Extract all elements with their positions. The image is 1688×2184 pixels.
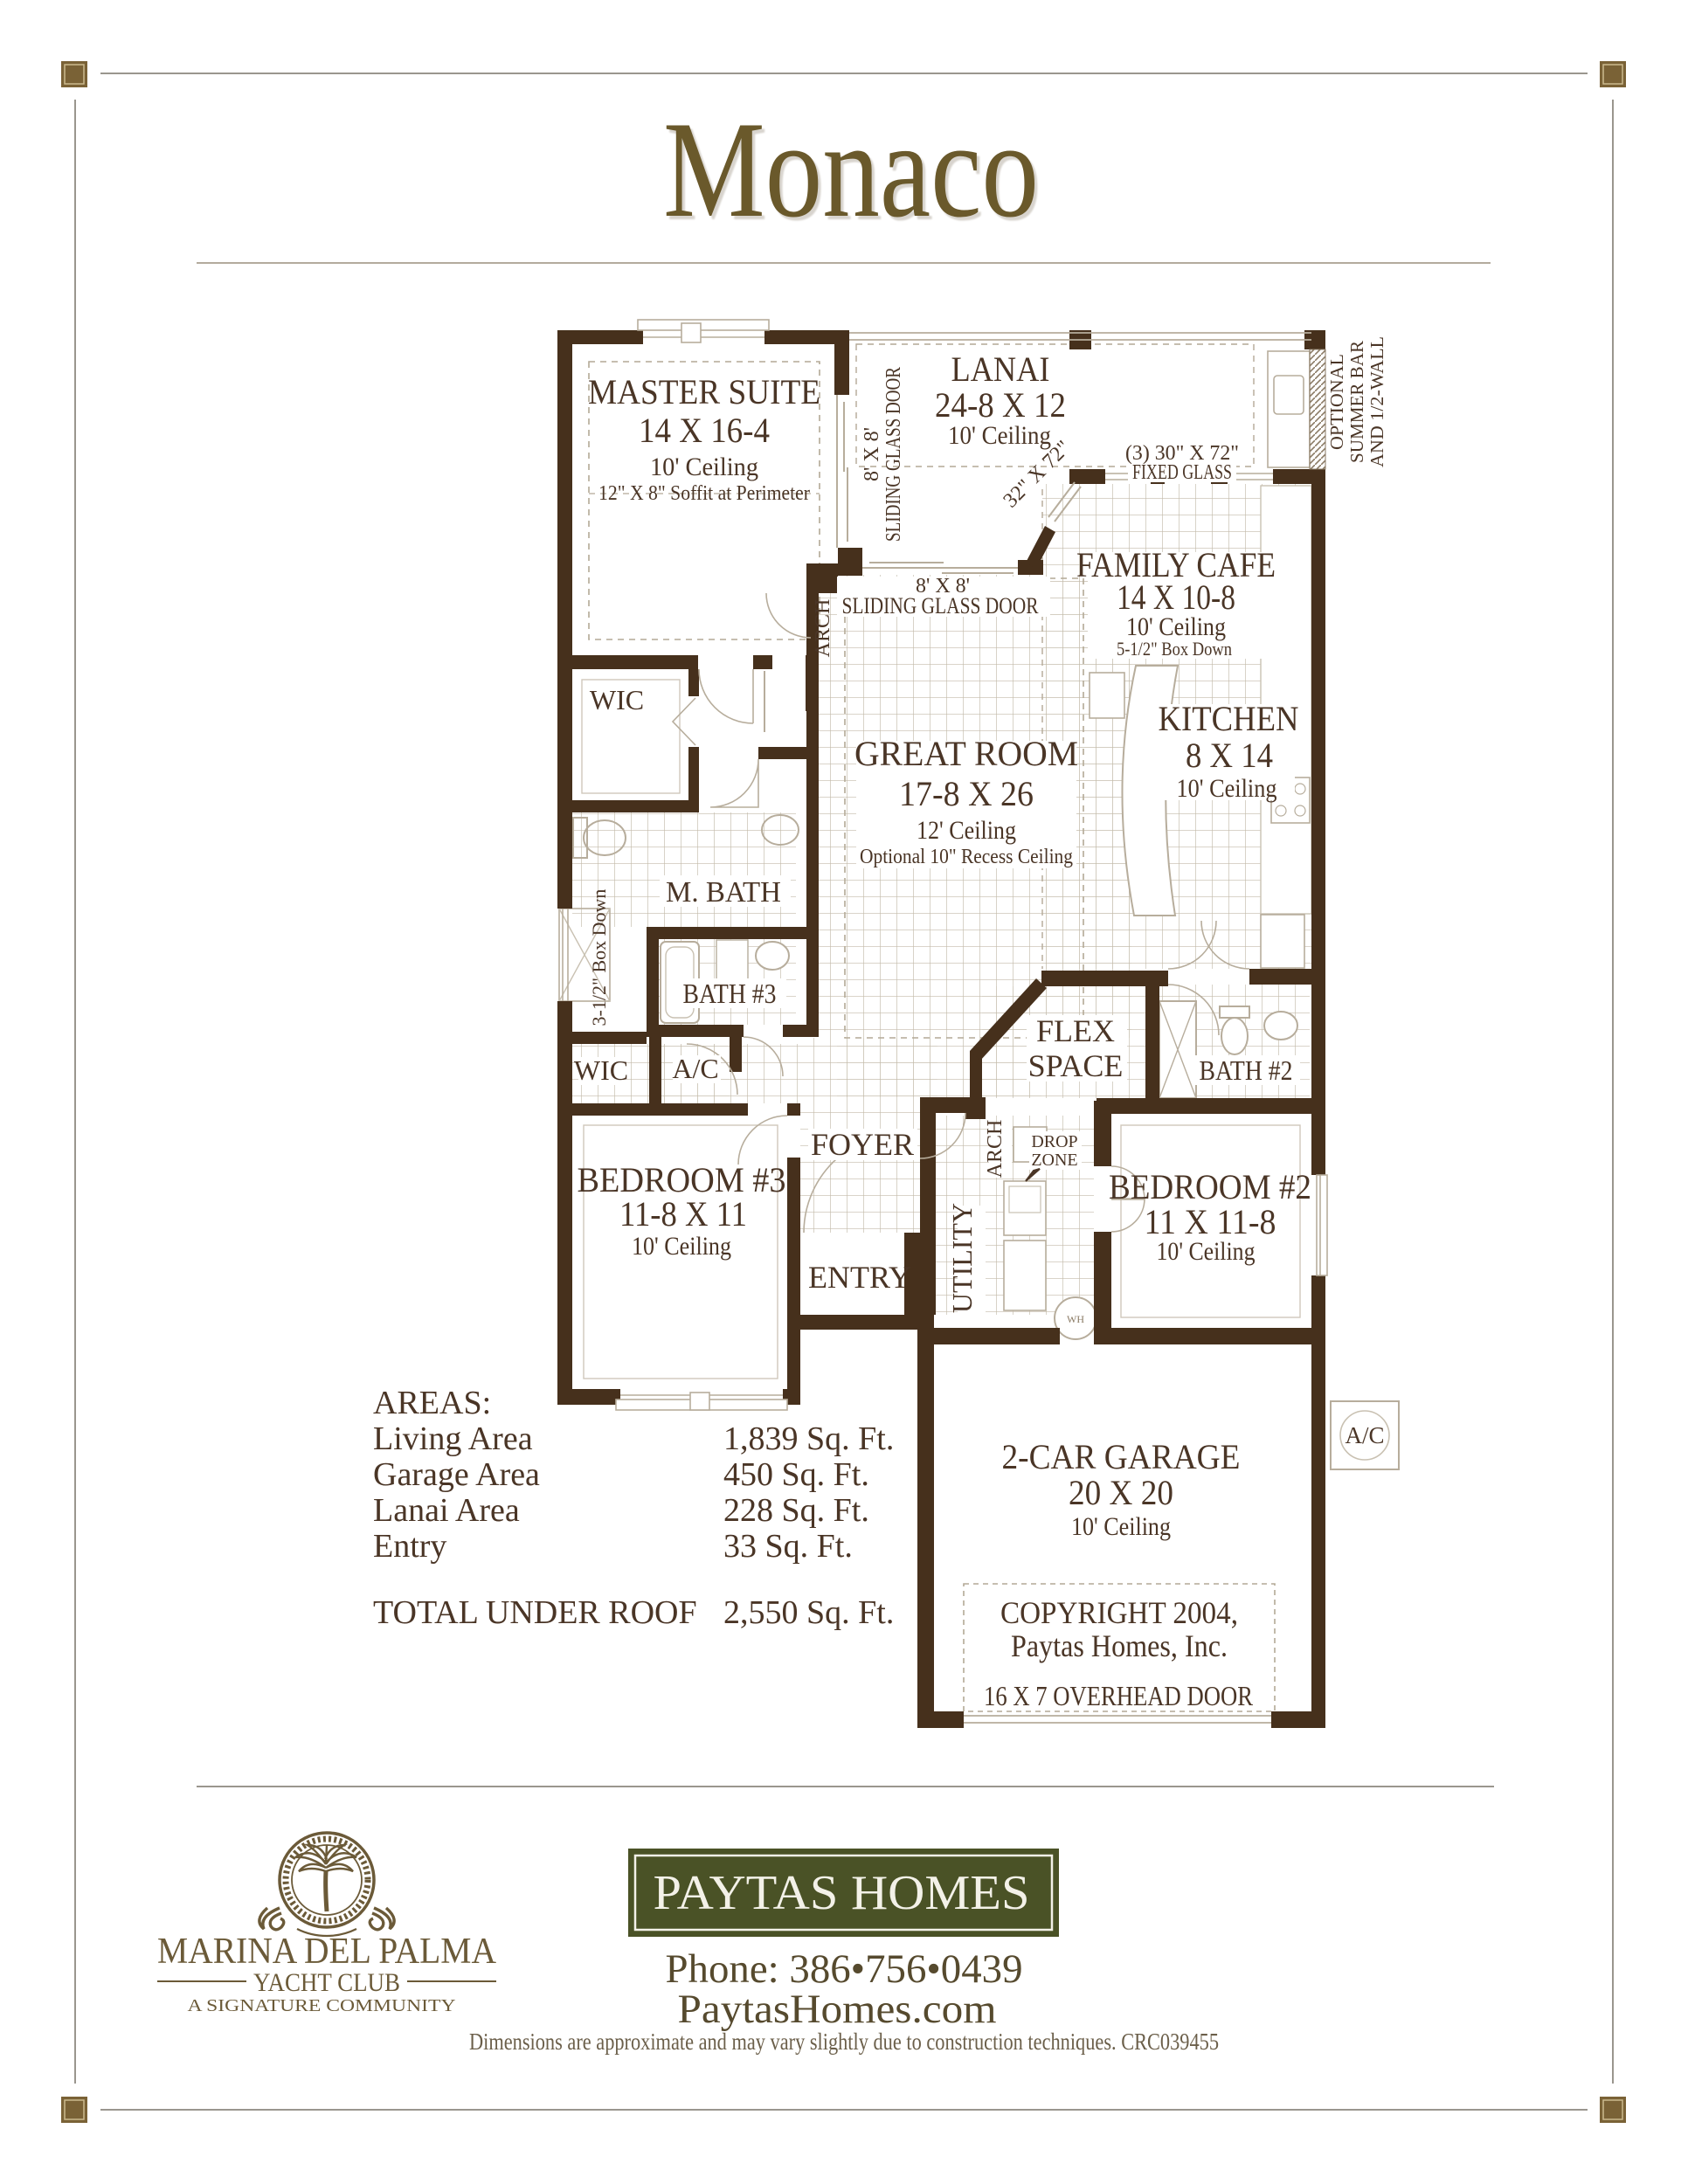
- svg-text:Garage Area: Garage Area: [373, 1456, 540, 1493]
- svg-text:Living Area: Living Area: [373, 1420, 533, 1457]
- svg-text:1,839 Sq. Ft.: 1,839 Sq. Ft.: [723, 1420, 894, 1457]
- svg-text:A/C: A/C: [1345, 1422, 1384, 1448]
- svg-text:Phone: 386•756•0439: Phone: 386•756•0439: [666, 1946, 1023, 1992]
- svg-text:SUMMER BAR: SUMMER BAR: [1346, 341, 1367, 463]
- svg-text:WH: WH: [1067, 1313, 1084, 1325]
- svg-text:Entry: Entry: [373, 1528, 446, 1565]
- svg-text:BATH #3: BATH #3: [683, 978, 777, 1009]
- svg-text:M. BATH: M. BATH: [666, 876, 781, 909]
- svg-text:10' Ceiling: 10' Ceiling: [1157, 1237, 1256, 1266]
- svg-text:10' Ceiling: 10' Ceiling: [1177, 774, 1277, 803]
- svg-text:10' Ceiling: 10' Ceiling: [650, 453, 758, 481]
- svg-text:FLEX: FLEX: [1036, 1013, 1115, 1048]
- svg-text:Paytas Homes, Inc.: Paytas Homes, Inc.: [1011, 1628, 1228, 1663]
- svg-text:450 Sq. Ft.: 450 Sq. Ft.: [723, 1456, 869, 1493]
- svg-text:16 X 7 OVERHEAD DOOR: 16 X 7 OVERHEAD DOOR: [984, 1680, 1254, 1711]
- svg-text:8 X 14: 8 X 14: [1186, 736, 1273, 775]
- svg-text:COPYRIGHT 2004,: COPYRIGHT 2004,: [1000, 1595, 1238, 1630]
- svg-text:24-8 X 12: 24-8 X 12: [935, 385, 1066, 425]
- svg-text:MARINA DEL PALMA: MARINA DEL PALMA: [157, 1932, 497, 1972]
- svg-text:WIC: WIC: [574, 1054, 628, 1086]
- svg-text:DROP: DROP: [1031, 1132, 1077, 1151]
- svg-text:PAYTAS HOMES: PAYTAS HOMES: [654, 1866, 1030, 1920]
- svg-text:Optional 10" Recess Ceiling: Optional 10" Recess Ceiling: [860, 846, 1073, 868]
- svg-text:FOYER: FOYER: [811, 1127, 914, 1162]
- svg-text:12" X 8" Soffit at Perimeter: 12" X 8" Soffit at Perimeter: [598, 482, 810, 505]
- svg-text:17-8 X 26: 17-8 X 26: [899, 774, 1034, 813]
- svg-text:KITCHEN: KITCHEN: [1159, 699, 1299, 738]
- svg-text:14 X 16-4: 14 X 16-4: [639, 411, 770, 450]
- svg-text:5-1/2" Box Down: 5-1/2" Box Down: [1117, 638, 1232, 660]
- svg-text:FIXED GLASS: FIXED GLASS: [1132, 461, 1232, 484]
- svg-text:10' Ceiling: 10' Ceiling: [1071, 1512, 1171, 1541]
- svg-text:BATH #2: BATH #2: [1200, 1054, 1293, 1086]
- svg-text:ENTRY: ENTRY: [808, 1260, 911, 1295]
- svg-text:SPACE: SPACE: [1028, 1048, 1124, 1083]
- svg-text:AREAS:: AREAS:: [373, 1385, 491, 1421]
- svg-text:Lanai Area: Lanai Area: [373, 1492, 520, 1529]
- svg-text:11-8 X 11: 11-8 X 11: [619, 1194, 747, 1234]
- svg-text:TOTAL UNDER ROOF: TOTAL UNDER ROOF: [373, 1594, 697, 1631]
- svg-text:228 Sq. Ft.: 228 Sq. Ft.: [723, 1492, 869, 1529]
- svg-text:MASTER SUITE: MASTER SUITE: [588, 372, 820, 411]
- svg-text:3-1/2" Box Down: 3-1/2" Box Down: [588, 889, 610, 1026]
- svg-text:10' Ceiling: 10' Ceiling: [948, 421, 1051, 450]
- svg-text:12' Ceiling: 12' Ceiling: [917, 816, 1016, 845]
- svg-text:20 X 20: 20 X 20: [1069, 1473, 1173, 1512]
- svg-text:OPTIONAL: OPTIONAL: [1326, 354, 1347, 450]
- svg-text:8' X 8': 8' X 8': [861, 427, 883, 481]
- svg-text:ARCH: ARCH: [812, 599, 834, 658]
- svg-text:Dimensions are approximate and: Dimensions are approximate and may vary …: [469, 2028, 1219, 2055]
- svg-text:YACHT CLUB: YACHT CLUB: [253, 1968, 400, 1997]
- svg-text:AND 1/2-WALL: AND 1/2-WALL: [1366, 336, 1387, 467]
- svg-text:A/C: A/C: [672, 1053, 718, 1084]
- svg-text:SLIDING GLASS DOOR: SLIDING GLASS DOOR: [842, 593, 1040, 619]
- svg-text:WIC: WIC: [590, 684, 644, 715]
- svg-text:BEDROOM #2: BEDROOM #2: [1109, 1167, 1311, 1206]
- svg-text:2-CAR GARAGE: 2-CAR GARAGE: [1002, 1437, 1241, 1476]
- svg-text:A SIGNATURE COMMUNITY: A SIGNATURE COMMUNITY: [188, 1996, 456, 2015]
- svg-text:33 Sq. Ft.: 33 Sq. Ft.: [723, 1528, 853, 1565]
- svg-text:ZONE: ZONE: [1031, 1151, 1077, 1170]
- svg-text:SLIDING GLASS DOOR: SLIDING GLASS DOOR: [882, 367, 905, 542]
- svg-text:UTILITY: UTILITY: [946, 1203, 978, 1313]
- svg-text:PaytasHomes.com: PaytasHomes.com: [678, 1987, 997, 2032]
- svg-text:2,550 Sq. Ft.: 2,550 Sq. Ft.: [723, 1594, 894, 1631]
- svg-text:LANAI: LANAI: [951, 349, 1050, 389]
- svg-text:ARCH: ARCH: [984, 1120, 1007, 1178]
- svg-text:14 X 10-8: 14 X 10-8: [1117, 577, 1235, 617]
- svg-text:11 X 11-8: 11 X 11-8: [1145, 1202, 1276, 1241]
- svg-text:GREAT ROOM: GREAT ROOM: [854, 734, 1078, 773]
- svg-text:10' Ceiling: 10' Ceiling: [632, 1232, 731, 1261]
- svg-text:Monaco: Monaco: [663, 93, 1039, 246]
